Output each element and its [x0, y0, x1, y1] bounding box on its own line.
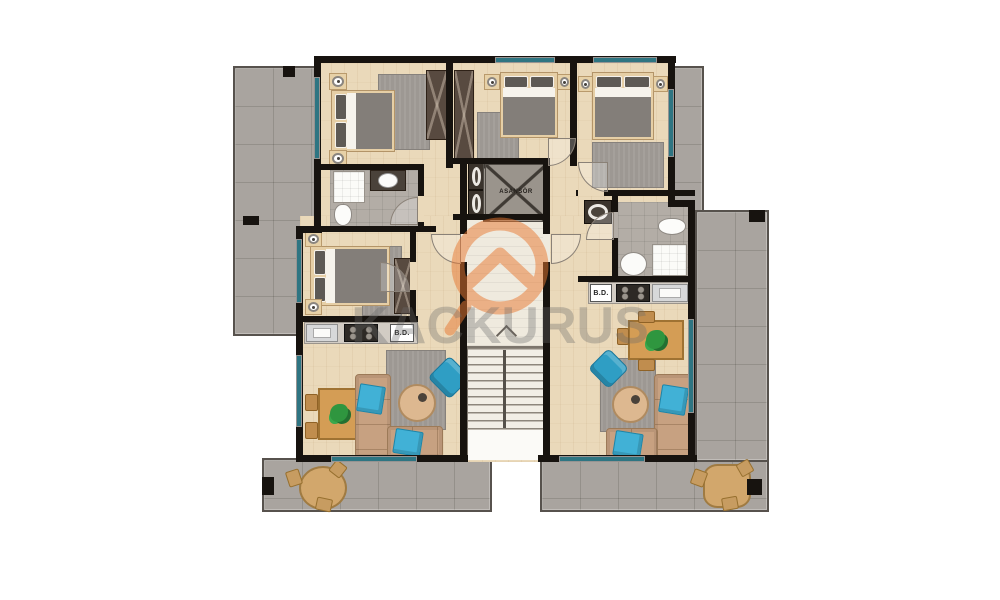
- bed-pillow: [624, 76, 650, 88]
- watermark-text: KACKURUS: [330, 296, 670, 356]
- bed-pillow: [596, 76, 622, 88]
- bed-blanket: [595, 97, 651, 137]
- column-post: [243, 216, 259, 225]
- bed-sheet: [326, 249, 335, 303]
- staircase: [467, 346, 545, 432]
- wardrobe: [426, 70, 448, 140]
- dining-chair: [305, 422, 318, 439]
- bed-pillow: [530, 76, 554, 88]
- nightstand: [305, 299, 322, 315]
- shower: [652, 244, 687, 276]
- wall: [446, 56, 453, 168]
- bed-pillow: [335, 122, 347, 148]
- terrace-chair: [721, 496, 739, 512]
- bed-pillow: [335, 94, 347, 120]
- door-gap: [418, 196, 424, 222]
- window: [332, 457, 416, 461]
- stair-landing: [467, 430, 545, 460]
- dining-chair: [638, 359, 655, 371]
- bed-sheet: [347, 93, 356, 149]
- lamp-icon: [581, 79, 590, 89]
- wall: [314, 164, 424, 170]
- bed-sheet: [595, 88, 651, 97]
- sink-bowl: [378, 173, 398, 188]
- bed-blanket: [503, 97, 555, 135]
- bed-pillow: [314, 250, 326, 275]
- nightstand: [578, 76, 593, 92]
- washer-drum: [472, 194, 481, 213]
- bed: [500, 72, 558, 138]
- logo-chevron-icon: [470, 254, 530, 282]
- lamp-icon: [308, 234, 319, 244]
- window: [297, 356, 301, 426]
- sink-counter: [370, 170, 406, 191]
- sofa-pillow: [356, 383, 386, 415]
- nightstand: [653, 76, 668, 92]
- wall: [578, 276, 695, 282]
- window: [496, 58, 554, 62]
- lamp-icon: [560, 77, 569, 87]
- column-post: [749, 210, 765, 222]
- lamp-icon: [332, 153, 344, 164]
- column-post: [283, 66, 295, 77]
- floor-plan-canvas: B.D. B.D. ASANSÖR: [0, 0, 1000, 600]
- column-post: [262, 477, 274, 495]
- lamp-icon: [656, 79, 665, 89]
- bed-blanket: [356, 93, 392, 149]
- window: [669, 90, 673, 156]
- plant-icon: [330, 404, 348, 422]
- nightstand: [329, 73, 347, 90]
- shower: [333, 171, 365, 203]
- window: [315, 78, 319, 158]
- sofa-pillow: [392, 428, 424, 457]
- window: [297, 240, 301, 302]
- stair-railing: [503, 350, 506, 428]
- nightstand: [484, 74, 500, 90]
- coffee-table: [612, 386, 649, 423]
- bed-sheet: [503, 88, 555, 97]
- bed: [592, 72, 654, 140]
- lamp-icon: [308, 302, 319, 312]
- lamp-icon: [332, 76, 344, 87]
- door-gap: [410, 262, 416, 290]
- wall: [453, 158, 550, 164]
- window: [594, 58, 656, 62]
- column-post: [747, 479, 762, 495]
- window: [689, 320, 693, 412]
- coffee-table: [398, 384, 436, 422]
- washer-drum: [472, 167, 481, 186]
- toilet: [334, 204, 352, 226]
- toilet: [658, 218, 686, 235]
- bed-pillow: [504, 76, 528, 88]
- elevator-label: ASANSÖR: [499, 189, 533, 195]
- dining-chair: [305, 394, 318, 411]
- terrace-right: [695, 210, 769, 462]
- window: [560, 457, 644, 461]
- bed: [331, 90, 395, 152]
- sofa-pillow: [658, 384, 689, 416]
- lamp-icon: [487, 77, 497, 87]
- wardrobe: [454, 70, 474, 160]
- nightstand: [305, 231, 322, 247]
- pedestal-sink: [620, 252, 647, 276]
